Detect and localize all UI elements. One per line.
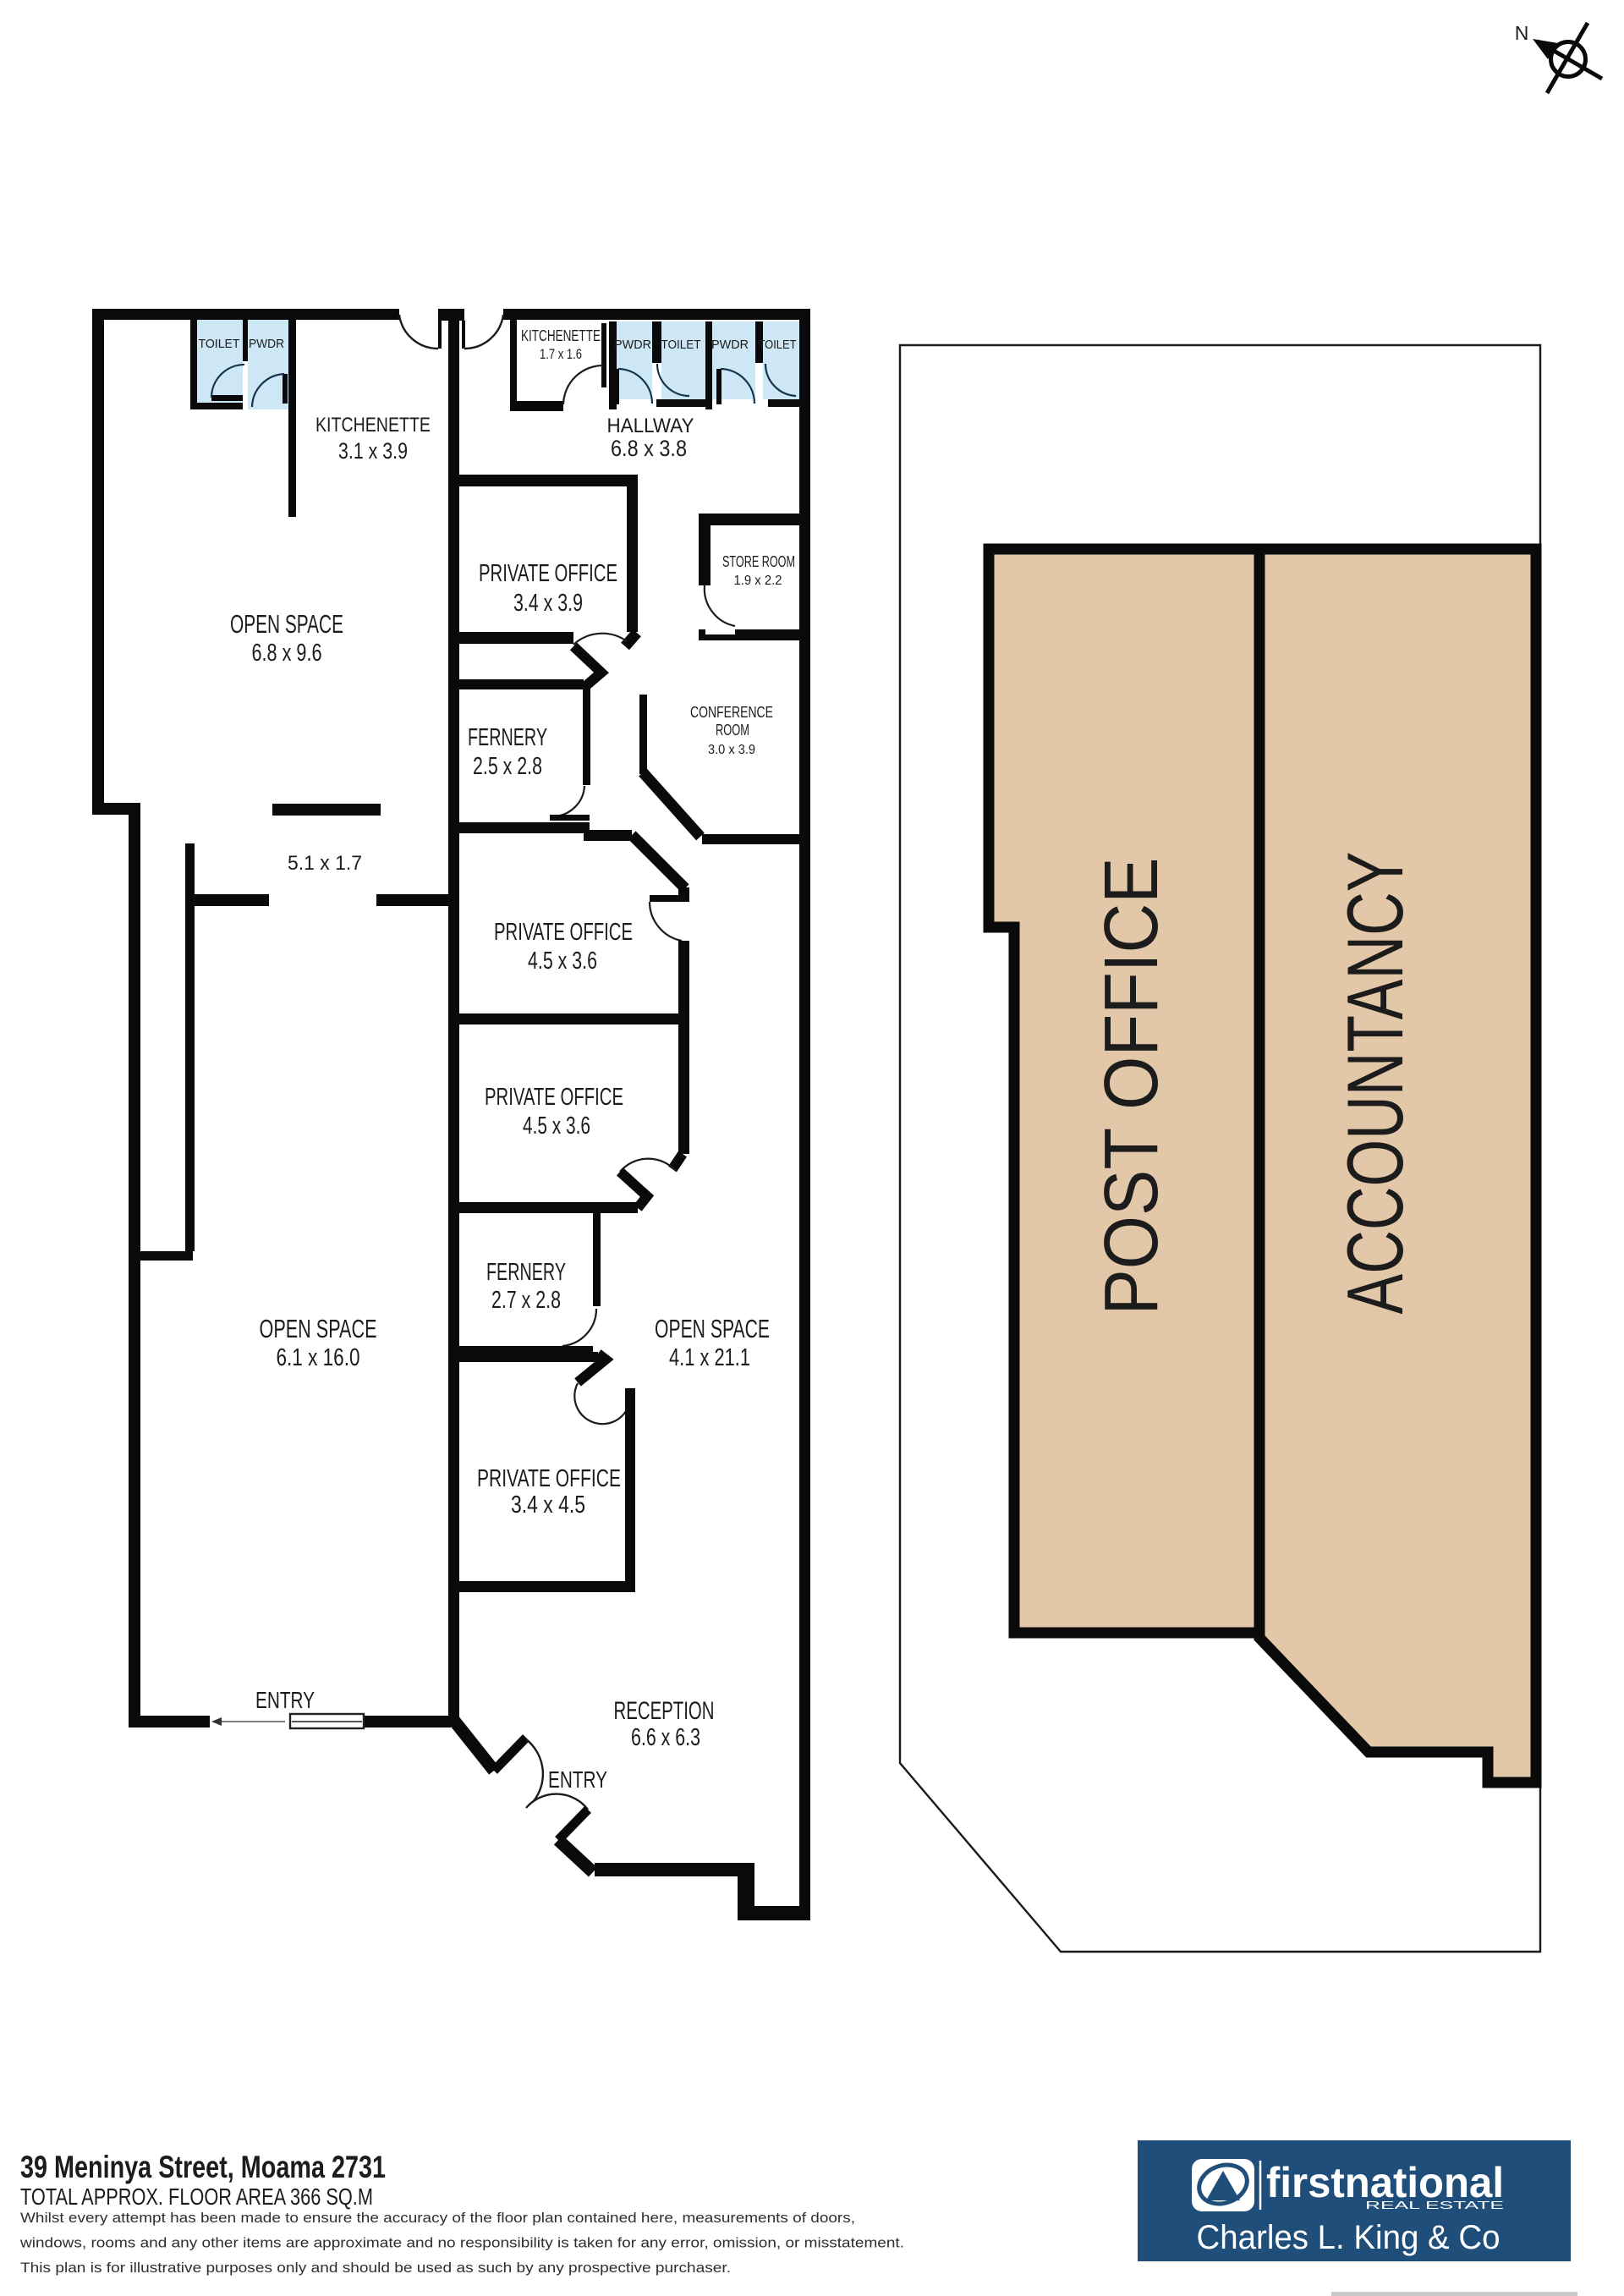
svg-text:STORE ROOM: STORE ROOM (722, 553, 795, 570)
svg-text:N: N (1515, 22, 1529, 44)
svg-text:TOILET: TOILET (199, 337, 240, 351)
svg-text:6.8 x 3.8: 6.8 x 3.8 (611, 436, 687, 461)
svg-text:HALLWAY: HALLWAY (607, 415, 694, 437)
svg-text:2.5 x 2.8: 2.5 x 2.8 (473, 753, 542, 780)
svg-text:windows, rooms and any other i: windows, rooms and any other items are a… (19, 2236, 904, 2251)
svg-text:RECEPTION: RECEPTION (614, 1697, 715, 1725)
svg-text:This plan is for illustrative: This plan is for illustrative purposes o… (20, 2260, 731, 2276)
svg-text:6.1 x 16.0: 6.1 x 16.0 (277, 1344, 360, 1371)
svg-text:KITCHENETTE: KITCHENETTE (521, 327, 601, 344)
svg-text:TOILET: TOILET (661, 338, 701, 352)
svg-text:3.0 x 3.9: 3.0 x 3.9 (708, 743, 755, 757)
svg-text:ROOM: ROOM (716, 722, 749, 739)
svg-text:PRIVATE OFFICE: PRIVATE OFFICE (479, 560, 617, 587)
svg-text:ENTRY: ENTRY (548, 1766, 607, 1793)
svg-text:FERNERY: FERNERY (468, 724, 547, 751)
svg-text:Whilst every attempt has been: Whilst every attempt has been made to en… (20, 2211, 855, 2226)
svg-text:OPEN SPACE: OPEN SPACE (655, 1314, 770, 1343)
svg-text:3.4 x 4.5: 3.4 x 4.5 (511, 1491, 585, 1519)
svg-text:PRIVATE OFFICE: PRIVATE OFFICE (477, 1465, 621, 1492)
svg-text:OPEN SPACE: OPEN SPACE (260, 1314, 377, 1343)
svg-text:TOILET: TOILET (759, 338, 797, 352)
svg-text:PRIVATE OFFICE: PRIVATE OFFICE (485, 1084, 623, 1111)
svg-text:3.1 x 3.9: 3.1 x 3.9 (338, 438, 408, 464)
svg-text:CONFERENCE: CONFERENCE (690, 704, 773, 721)
svg-text:PWDR: PWDR (711, 338, 749, 352)
svg-text:Charles L. King & Co: Charles L. King & Co (1197, 2219, 1501, 2256)
svg-text:3.4 x 3.9: 3.4 x 3.9 (513, 590, 583, 617)
svg-text:39 Meninya Street, Moama 2731: 39 Meninya Street, Moama 2731 (20, 2150, 386, 2184)
svg-text:ACCOUNTANCY: ACCOUNTANCY (1330, 852, 1419, 1315)
svg-text:FERNERY: FERNERY (486, 1259, 566, 1286)
svg-text:OPEN SPACE: OPEN SPACE (230, 609, 343, 639)
svg-text:6.8 x 9.6: 6.8 x 9.6 (252, 640, 322, 667)
svg-text:1.7 x 1.6: 1.7 x 1.6 (540, 346, 582, 362)
svg-text:KITCHENETTE: KITCHENETTE (315, 414, 431, 437)
svg-text:6.6 x 6.3: 6.6 x 6.3 (631, 1724, 700, 1751)
svg-text:POST OFFICE: POST OFFICE (1089, 858, 1174, 1316)
svg-text:TOTAL APPROX. FLOOR AREA 366 S: TOTAL APPROX. FLOOR AREA 366 SQ.M (20, 2183, 373, 2210)
svg-text:4.1 x 21.1: 4.1 x 21.1 (669, 1344, 750, 1371)
svg-text:4.5 x 3.6: 4.5 x 3.6 (528, 948, 597, 975)
svg-text:PWDR: PWDR (249, 337, 284, 351)
svg-text:REAL ESTATE: REAL ESTATE (1365, 2199, 1505, 2211)
svg-text:5.1 x 1.7: 5.1 x 1.7 (288, 852, 362, 875)
svg-text:PRIVATE OFFICE: PRIVATE OFFICE (494, 919, 633, 946)
svg-text:PWDR: PWDR (614, 338, 651, 352)
svg-text:2.7 x 2.8: 2.7 x 2.8 (491, 1287, 561, 1314)
svg-text:ENTRY: ENTRY (255, 1687, 315, 1713)
svg-text:4.5 x 3.6: 4.5 x 3.6 (523, 1112, 590, 1140)
svg-text:1.9 x 2.2: 1.9 x 2.2 (734, 574, 782, 588)
